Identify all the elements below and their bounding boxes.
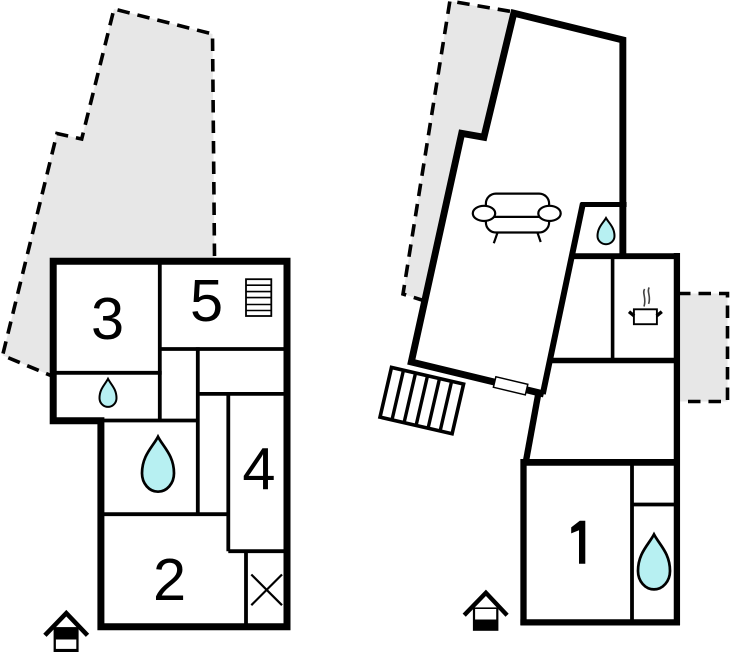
svg-text:2: 2 — [153, 546, 186, 613]
svg-text:4: 4 — [242, 435, 275, 502]
svg-text:3: 3 — [91, 285, 124, 352]
svg-text:5: 5 — [190, 267, 223, 334]
